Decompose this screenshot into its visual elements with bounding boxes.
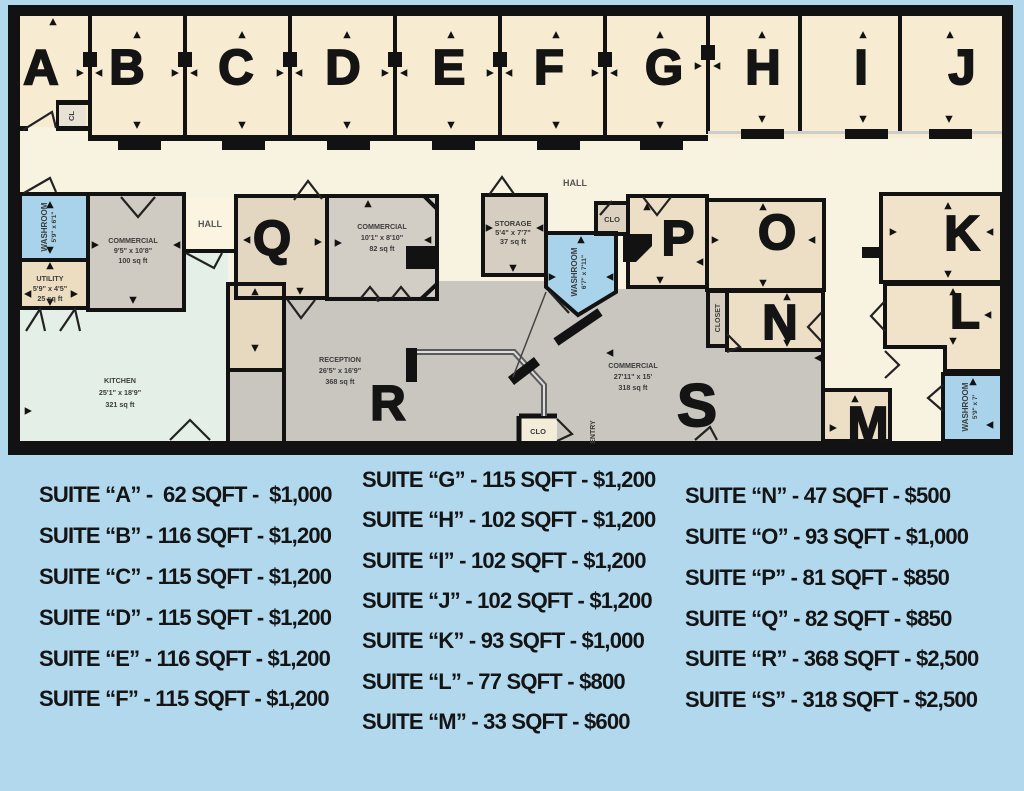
svg-text:E: E	[433, 41, 466, 95]
svg-text:HALL: HALL	[563, 178, 587, 188]
svg-text:A: A	[23, 41, 58, 95]
svg-text:c: c	[376, 295, 380, 304]
svg-text:5'9" x 6'1": 5'9" x 6'1"	[51, 212, 58, 243]
svg-text:CLO: CLO	[604, 215, 620, 224]
svg-text:25 sq ft: 25 sq ft	[37, 294, 63, 303]
svg-text:G: G	[645, 41, 683, 95]
svg-text:S: S	[677, 372, 717, 439]
svg-text:J: J	[948, 41, 975, 95]
svg-text:COMMERCIAL: COMMERCIAL	[108, 236, 158, 245]
svg-text:368 sq ft: 368 sq ft	[325, 377, 355, 386]
svg-text:ENTRY: ENTRY	[590, 420, 597, 444]
svg-text:L: L	[950, 285, 980, 339]
svg-text:O: O	[758, 206, 796, 260]
svg-text:N: N	[762, 296, 797, 350]
svg-text:10'1" x 8'10": 10'1" x 8'10"	[361, 233, 403, 242]
svg-text:UTILITY: UTILITY	[36, 274, 63, 283]
svg-text:5'4" x 7'7": 5'4" x 7'7"	[495, 228, 531, 237]
svg-text:COMMERCIAL: COMMERCIAL	[608, 361, 658, 370]
svg-text:C: C	[218, 41, 253, 95]
svg-text:318 sq ft: 318 sq ft	[618, 383, 648, 392]
svg-text:26'5" x 16'9": 26'5" x 16'9"	[319, 366, 361, 375]
svg-text:6'7" x 7'11": 6'7" x 7'11"	[581, 255, 588, 289]
svg-text:F: F	[534, 41, 564, 95]
svg-text:100 sq ft: 100 sq ft	[118, 256, 148, 265]
svg-text:WASHROOM: WASHROOM	[40, 202, 49, 251]
svg-text:9'5" x 10'8": 9'5" x 10'8"	[114, 246, 152, 255]
svg-text:P: P	[662, 212, 695, 266]
svg-text:D: D	[325, 41, 360, 95]
svg-text:STORAGE: STORAGE	[495, 219, 532, 228]
svg-text:B: B	[109, 41, 144, 95]
svg-text:K: K	[944, 207, 979, 261]
svg-text:CLOSET: CLOSET	[715, 303, 722, 332]
svg-text:27'11" x 15': 27'11" x 15'	[614, 372, 653, 381]
svg-text:37 sq ft: 37 sq ft	[500, 237, 527, 246]
svg-text:CLO: CLO	[530, 427, 546, 436]
svg-text:321 sq ft: 321 sq ft	[105, 400, 135, 409]
svg-text:5'9" x 4'5": 5'9" x 4'5"	[33, 284, 67, 293]
svg-text:H: H	[745, 41, 780, 95]
svg-text:WASHROOM: WASHROOM	[570, 247, 579, 296]
svg-text:KITCHEN: KITCHEN	[104, 376, 136, 385]
svg-text:CL: CL	[67, 111, 76, 121]
svg-text:Q: Q	[253, 212, 291, 266]
svg-text:HALL: HALL	[198, 219, 222, 229]
svg-text:25'1" x 18'9": 25'1" x 18'9"	[99, 388, 141, 397]
svg-text:5'9" x 7': 5'9" x 7'	[972, 394, 979, 419]
svg-text:COMMERCIAL: COMMERCIAL	[357, 222, 407, 231]
svg-text:I: I	[854, 41, 868, 95]
svg-text:RECEPTION: RECEPTION	[319, 355, 361, 364]
svg-text:82 sq ft: 82 sq ft	[369, 244, 395, 253]
svg-text:WASHROOM: WASHROOM	[961, 382, 970, 431]
svg-text:M: M	[848, 398, 889, 452]
svg-text:R: R	[370, 377, 405, 431]
